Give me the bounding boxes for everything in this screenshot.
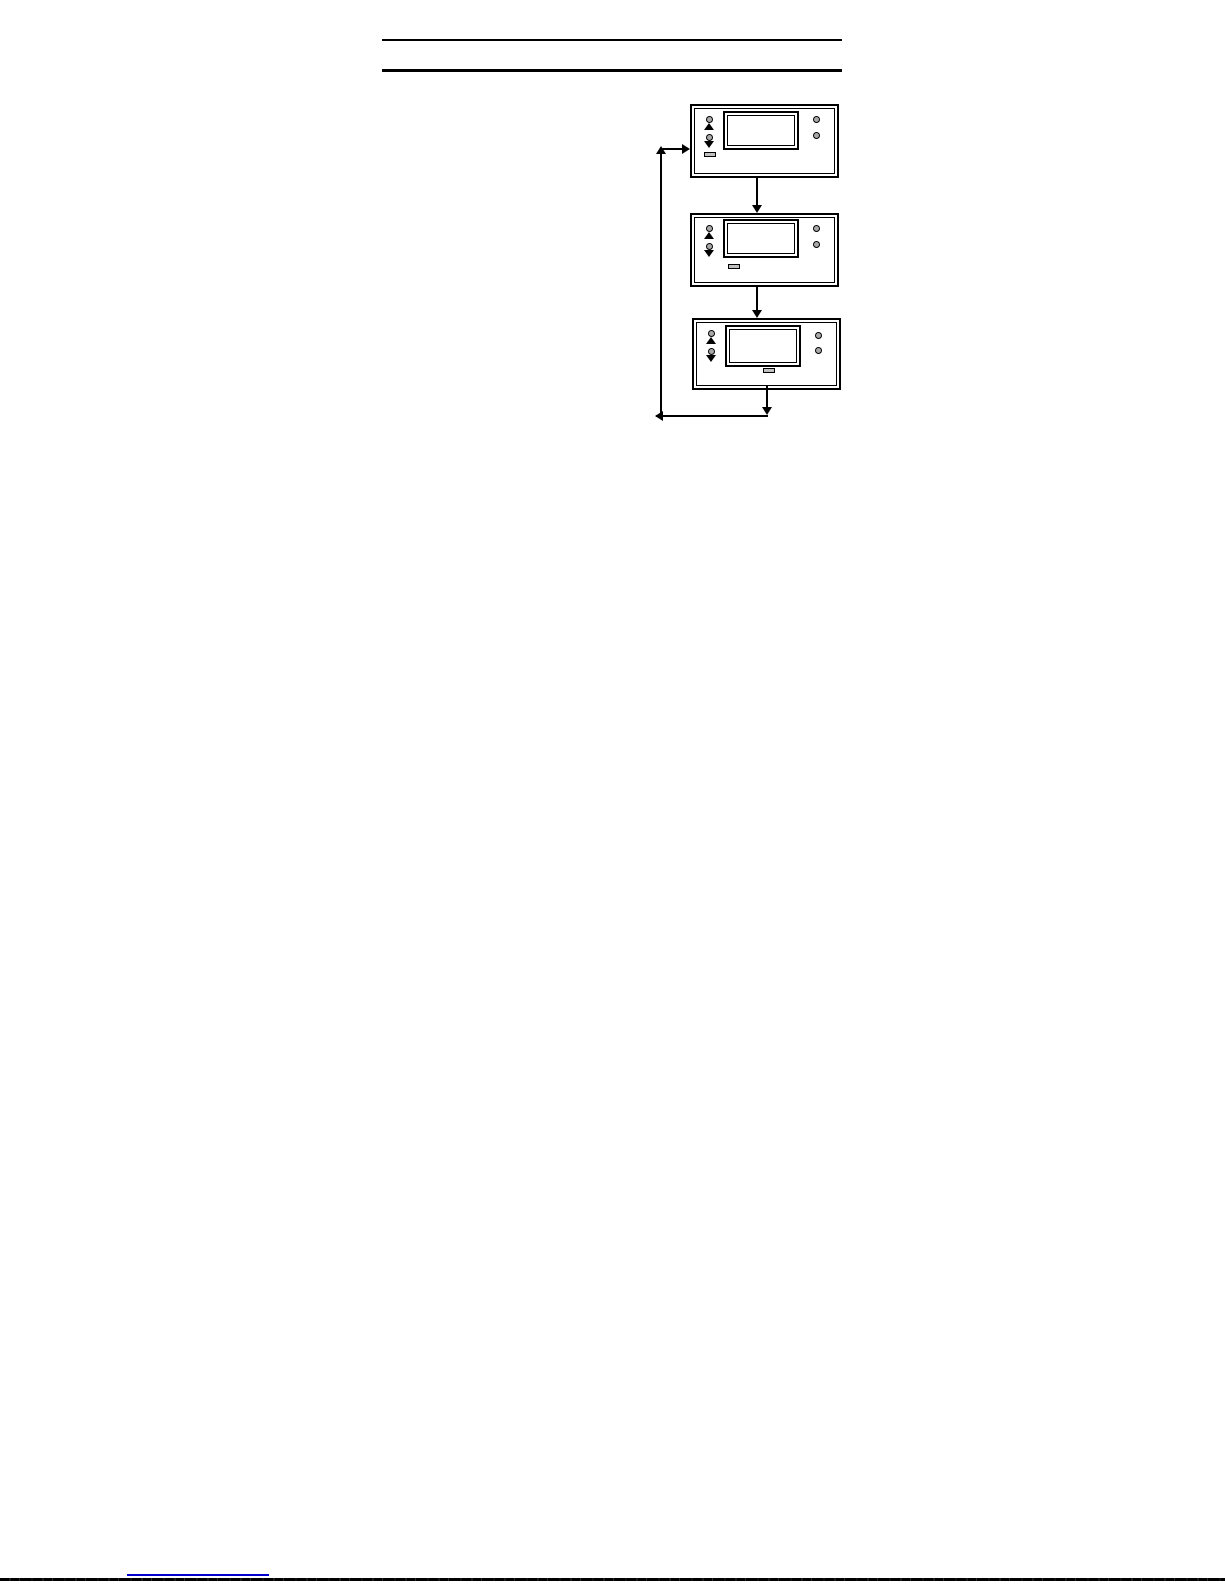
- led-icon: [813, 116, 820, 123]
- led-icon: [813, 132, 820, 139]
- flow-loop-left-shaft: [660, 152, 662, 416]
- flow-loop-down-shaft: [766, 386, 768, 408]
- led-icon: [708, 348, 715, 355]
- flow-loop-bottom-shaft: [656, 415, 768, 417]
- lcd-display-inner: [727, 115, 795, 146]
- led-icon: [706, 225, 713, 232]
- up-arrow-button-icon: [704, 123, 714, 130]
- header-rule-top: [382, 39, 842, 41]
- flow-loop-top-shaft: [661, 148, 682, 150]
- led-icon: [815, 347, 822, 354]
- flow-arrow-2-3-shaft: [756, 287, 758, 311]
- lcd-display: [723, 111, 799, 150]
- led-icon: [706, 116, 713, 123]
- led-icon: [706, 134, 713, 141]
- control-panel-step-2: [690, 213, 839, 287]
- led-icon: [706, 243, 713, 250]
- arrowhead-down-icon: [752, 310, 762, 318]
- led-icon: [708, 330, 715, 337]
- arrowhead-down-icon: [762, 407, 772, 415]
- lcd-display: [723, 219, 799, 258]
- footer-link[interactable]: [127, 1574, 269, 1576]
- page-bottom-scan-artifact: [0, 1578, 1225, 1581]
- up-arrow-button-icon: [704, 232, 714, 239]
- arrowhead-down-icon: [752, 205, 762, 213]
- led-icon: [813, 225, 820, 232]
- lcd-display-inner: [727, 223, 795, 254]
- function-button-icon: [763, 368, 775, 373]
- function-button-icon: [704, 152, 716, 157]
- control-panel-step-3: [692, 318, 841, 390]
- up-arrow-button-icon: [706, 337, 716, 344]
- header-rule-bottom: [382, 69, 842, 72]
- led-icon: [815, 332, 822, 339]
- down-arrow-button-icon: [704, 141, 714, 148]
- lcd-display: [725, 325, 801, 367]
- down-arrow-button-icon: [706, 355, 716, 362]
- flow-arrow-1-2-shaft: [756, 178, 758, 206]
- function-button-icon: [728, 264, 740, 269]
- control-panel-step-1: [690, 104, 839, 178]
- led-icon: [813, 241, 820, 248]
- arrowhead-right-icon: [682, 144, 690, 154]
- lcd-display-inner: [729, 329, 797, 363]
- down-arrow-button-icon: [704, 250, 714, 257]
